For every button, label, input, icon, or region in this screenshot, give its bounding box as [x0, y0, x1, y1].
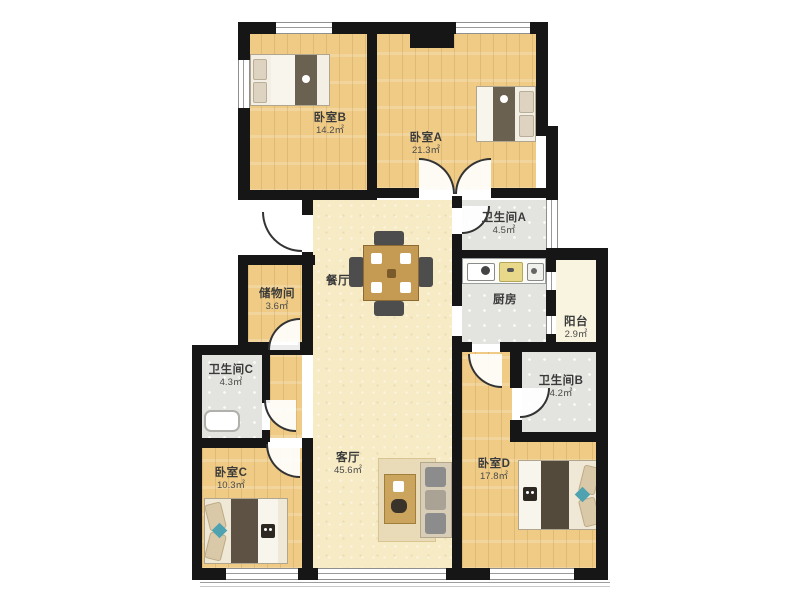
room-label-storage: 储物间 3.6㎡ [240, 288, 314, 312]
wall [536, 22, 548, 134]
room-label-kitchen: 厨房 [465, 294, 545, 307]
wall [302, 342, 313, 355]
room-label-dining: 餐厅 [308, 275, 368, 288]
dining-chair [418, 257, 433, 287]
bed-bedroom-c [204, 498, 288, 564]
wall [452, 196, 462, 208]
bed-bedroom-a [476, 86, 536, 142]
window [546, 200, 558, 248]
wall [410, 22, 454, 48]
room-label-living: 客厅 45.6㎡ [308, 452, 388, 476]
window-sill [200, 582, 610, 587]
window [456, 22, 530, 34]
bathtub [204, 410, 240, 432]
room-label-bathroom-b: 卫生间B 4.2㎡ [516, 375, 606, 399]
floorplan: 卧室B 14.2㎡ 卧室A 21.3㎡ 卫生间A 4.5㎡ 餐厅 储物间 3.6… [0, 0, 800, 600]
wall [367, 30, 377, 190]
window [276, 22, 332, 34]
wall [500, 342, 608, 352]
kitchen-counter [462, 258, 546, 284]
wall [452, 342, 472, 352]
wall [375, 188, 419, 198]
dining-table [363, 245, 419, 301]
sofa [420, 462, 452, 538]
room-label-bathroom-a: 卫生间A 4.5㎡ [464, 212, 544, 236]
bathroom-c-door-arc [264, 400, 296, 432]
wall [192, 438, 268, 448]
room-label-balcony: 阳台 2.9㎡ [548, 316, 604, 340]
room-label-bedroom-a: 卧室A 21.3㎡ [386, 132, 466, 156]
room-label-bedroom-c: 卧室C 10.3㎡ [192, 467, 270, 491]
wall [302, 190, 313, 215]
dining-chair [374, 231, 404, 246]
window [546, 272, 556, 290]
room-label-bedroom-d: 卧室D 17.8㎡ [454, 458, 534, 482]
room-label-bathroom-c: 卫生间C 4.3㎡ [192, 364, 270, 388]
entry-door-arc [262, 212, 302, 252]
wall [452, 250, 556, 258]
wall [452, 258, 462, 306]
window [318, 568, 446, 580]
window [226, 568, 298, 580]
window [490, 568, 574, 580]
window [238, 60, 250, 108]
wall [238, 22, 250, 200]
wall [313, 190, 377, 200]
dining-chair [374, 301, 404, 316]
wall [510, 432, 608, 442]
wall [491, 188, 548, 198]
coffee-table [384, 474, 416, 524]
room-label-bedroom-b: 卧室B 14.2㎡ [290, 112, 370, 136]
wall [596, 248, 608, 580]
bed-bedroom-b [250, 54, 330, 106]
wall [262, 430, 270, 442]
